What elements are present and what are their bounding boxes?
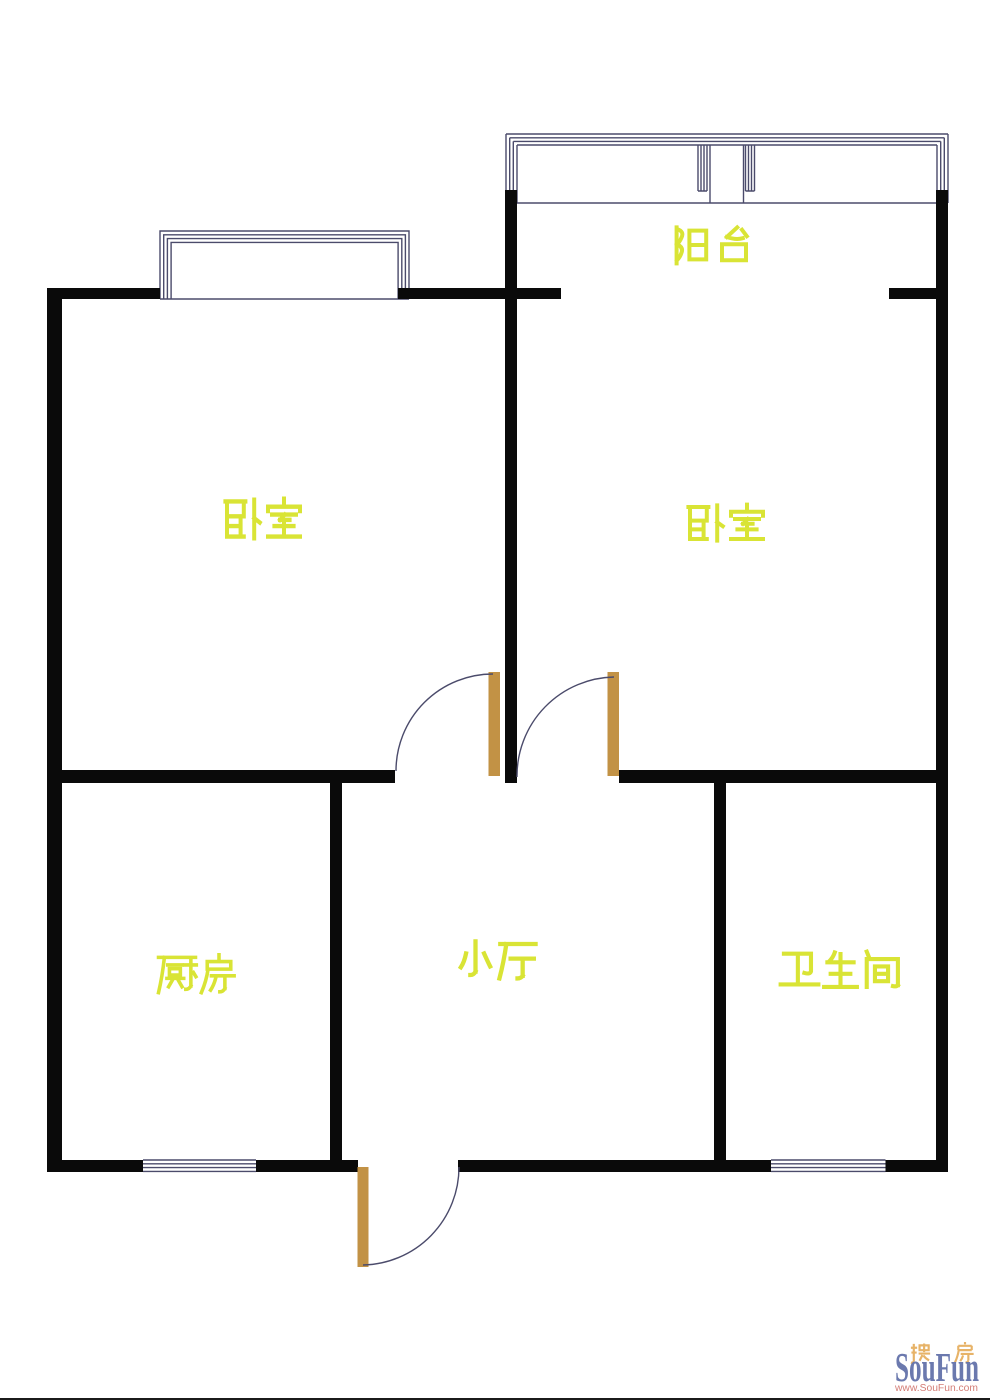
- svg-text:www.SouFun.com: www.SouFun.com: [894, 1383, 978, 1394]
